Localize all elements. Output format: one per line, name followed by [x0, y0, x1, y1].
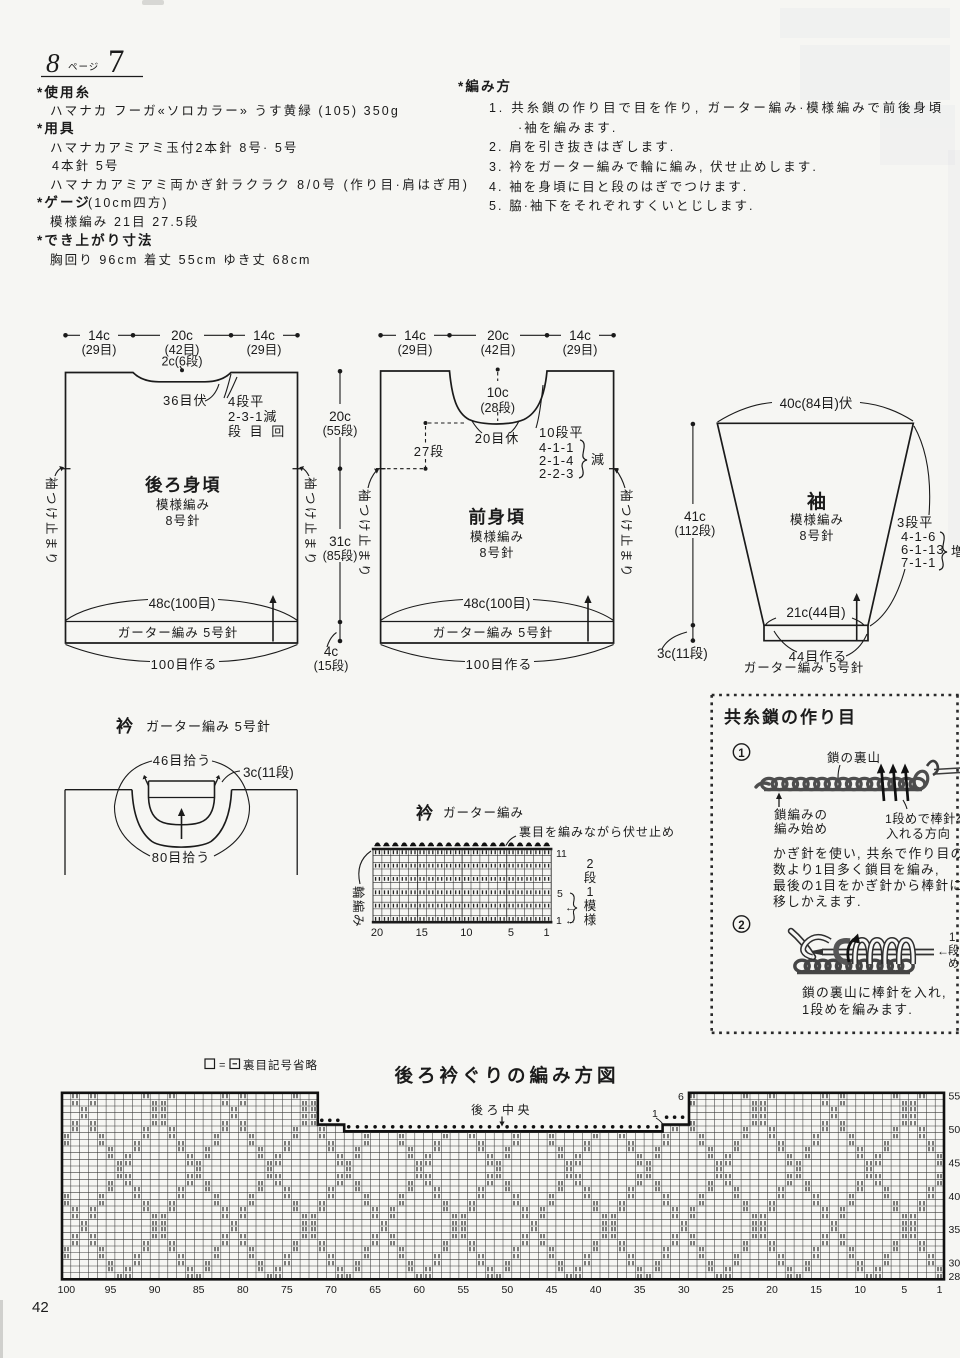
svg-text:(29目): (29目) — [82, 343, 117, 357]
svg-text:1: 1 — [587, 885, 594, 899]
svg-text:*でき上がり寸法: *でき上がり寸法 — [37, 232, 154, 248]
svg-text:=: = — [219, 1060, 225, 1072]
svg-text:14c: 14c — [569, 328, 591, 343]
svg-text:鎖編みの: 鎖編みの — [774, 807, 828, 822]
svg-text:(42目): (42目) — [481, 343, 516, 357]
svg-text:*使用糸: *使用糸 — [37, 84, 91, 100]
svg-text:15: 15 — [810, 1284, 822, 1296]
svg-text:移しかえます.: 移しかえます. — [773, 894, 862, 909]
svg-text:*ゲージ: *ゲージ — [37, 194, 91, 210]
svg-text:ガーター編み 5号針: ガーター編み 5号針 — [118, 625, 238, 640]
svg-text:90: 90 — [149, 1284, 161, 1296]
svg-text:*用具: *用具 — [37, 121, 76, 136]
svg-text:28: 28 — [949, 1271, 960, 1283]
svg-text:(55段): (55段) — [323, 423, 358, 438]
svg-text:模様編み: 模様編み — [156, 497, 210, 512]
svg-text:100: 100 — [58, 1284, 76, 1296]
svg-text:·袖を編みます.: ·袖を編みます. — [518, 120, 617, 135]
svg-text:ハマナカアミアミ玉付2本針 8号· 5号: ハマナカアミアミ玉付2本針 8号· 5号 — [50, 140, 298, 155]
svg-text:模様編み: 模様編み — [470, 529, 524, 544]
svg-text:31c: 31c — [329, 534, 351, 549]
svg-text:7: 7 — [108, 44, 125, 80]
svg-text:1. 共糸鎖の作り目で目を作り, ガーター編み·模様編みで前: 1. 共糸鎖の作り目で目を作り, ガーター編み·模様編みで前後身頃 — [489, 100, 944, 115]
svg-text:*編み方: *編み方 — [458, 78, 512, 94]
svg-text:ガーター編み: ガーター編み — [443, 805, 524, 820]
svg-text:48c(100目): 48c(100目) — [149, 596, 216, 611]
svg-text:40: 40 — [590, 1284, 602, 1296]
svg-text:25: 25 — [722, 1284, 734, 1296]
svg-text:鎖の裏山: 鎖の裏山 — [827, 750, 881, 765]
svg-text:14c: 14c — [253, 328, 275, 343]
svg-text:4. 袖を身頃に目と段のはぎでつけます.: 4. 袖を身頃に目と段のはぎでつけます. — [489, 179, 748, 194]
svg-text:40c(84目)伏: 40c(84目)伏 — [780, 396, 853, 411]
svg-text:20目休: 20目休 — [475, 431, 519, 446]
svg-text:裏目を編みながら伏せ止め: 裏目を編みながら伏せ止め — [519, 824, 675, 839]
svg-text:5: 5 — [901, 1284, 907, 1296]
svg-text:4c: 4c — [324, 644, 339, 659]
svg-text:8号針: 8号針 — [166, 513, 201, 528]
svg-text:(112段): (112段) — [675, 523, 716, 538]
svg-text:40: 40 — [949, 1191, 960, 1203]
svg-text:模: 模 — [584, 899, 597, 913]
svg-text:ハマナカアミアミ両かぎ針ラクラク 8/0号 (作り目·肩は: ハマナカアミアミ両かぎ針ラクラク 8/0号 (作り目·肩はぎ用) — [50, 177, 470, 192]
svg-text:20c: 20c — [487, 328, 509, 343]
svg-text:ガーター編み 5号針: ガーター編み 5号針 — [433, 625, 553, 640]
svg-text:袖つけ止まり: 袖つけ止まり — [619, 489, 634, 579]
svg-text:増: 増 — [951, 544, 960, 559]
svg-text:50: 50 — [949, 1124, 960, 1136]
svg-text:65: 65 — [369, 1284, 381, 1296]
svg-text:60: 60 — [413, 1284, 425, 1296]
svg-text:後ろ身頃: 後ろ身頃 — [145, 475, 221, 495]
svg-text:段 目 回: 段 目 回 — [228, 424, 287, 439]
svg-text:20c: 20c — [329, 409, 351, 424]
svg-text:2-2-3: 2-2-3 — [539, 466, 574, 481]
svg-text:ハマナカ フーガ«ソロカラー» うす黄緑 (105) 350: ハマナカ フーガ«ソロカラー» うす黄緑 (105) 350g — [50, 103, 400, 118]
svg-text:前身頃: 前身頃 — [469, 507, 526, 527]
svg-text:55: 55 — [457, 1284, 469, 1296]
svg-text:裏目記号省略: 裏目記号省略 — [243, 1058, 318, 1072]
svg-text:(29目): (29目) — [247, 343, 282, 357]
svg-text:5: 5 — [508, 927, 514, 939]
svg-text:様: 様 — [584, 912, 597, 927]
svg-text:7-1-1: 7-1-1 — [901, 555, 936, 570]
svg-text:1段めで棒針を: 1段めで棒針を — [885, 811, 960, 826]
svg-text:11: 11 — [556, 848, 567, 860]
svg-text:1: 1 — [556, 915, 562, 927]
svg-text:鎖の裏山に棒針を入れ,: 鎖の裏山に棒針を入れ, — [802, 985, 947, 1000]
svg-text:30: 30 — [678, 1284, 690, 1296]
svg-text:15: 15 — [416, 927, 428, 939]
svg-text:5: 5 — [557, 888, 563, 900]
svg-text:ページ: ページ — [68, 62, 99, 73]
svg-text:45: 45 — [546, 1284, 558, 1296]
svg-text:段: 段 — [584, 870, 597, 885]
svg-text:6: 6 — [678, 1091, 684, 1103]
svg-text:(29目): (29目) — [398, 343, 433, 357]
svg-text:27段: 27段 — [414, 444, 444, 459]
svg-text:2: 2 — [587, 857, 594, 871]
svg-text:模様編み 21目 27.5段: 模様編み 21目 27.5段 — [50, 214, 200, 229]
svg-text:10段平: 10段平 — [539, 425, 583, 440]
svg-text:35: 35 — [634, 1284, 646, 1296]
svg-text:80目拾う: 80目拾う — [152, 850, 210, 865]
svg-text:1段めを編みます.: 1段めを編みます. — [802, 1002, 913, 1017]
svg-text:2c(6段): 2c(6段) — [162, 354, 203, 369]
svg-text:100目作る: 100目作る — [466, 657, 533, 672]
svg-text:10: 10 — [460, 927, 472, 939]
svg-text:1: 1 — [937, 1284, 943, 1296]
svg-text:入れる方向: 入れる方向 — [886, 826, 951, 841]
svg-text:4段平: 4段平 — [228, 394, 264, 409]
svg-text:2: 2 — [738, 920, 744, 932]
svg-text:41c: 41c — [684, 509, 706, 524]
svg-text:1: 1 — [738, 748, 745, 760]
svg-text:衿: 衿 — [416, 803, 433, 823]
svg-text:20: 20 — [371, 927, 383, 939]
svg-text:21c(44目): 21c(44目) — [786, 605, 845, 620]
svg-text:後ろ衿ぐりの編み方図: 後ろ衿ぐりの編み方図 — [394, 1065, 619, 1086]
svg-text:ガーター編み 5号針: ガーター編み 5号針 — [146, 719, 271, 734]
svg-text:輪編み: 輪編み — [351, 886, 366, 928]
svg-text:10c: 10c — [487, 385, 509, 400]
svg-text:10: 10 — [854, 1284, 866, 1296]
svg-text:袖つけ止まり: 袖つけ止まり — [357, 489, 372, 579]
svg-text:8号針: 8号針 — [800, 528, 835, 543]
svg-text:袖つけ止まり: 袖つけ止まり — [303, 477, 318, 567]
svg-text:(10cm四方): (10cm四方) — [88, 195, 169, 210]
svg-text:85: 85 — [193, 1284, 205, 1296]
svg-text:20: 20 — [766, 1284, 778, 1296]
svg-text:4本針 5号: 4本針 5号 — [52, 158, 119, 173]
svg-text:95: 95 — [105, 1284, 117, 1296]
svg-text:袖: 袖 — [807, 490, 827, 513]
svg-text:55: 55 — [949, 1091, 960, 1103]
svg-text:共糸鎖の作り目: 共糸鎖の作り目 — [724, 707, 857, 727]
svg-text:75: 75 — [281, 1284, 293, 1296]
svg-text:3. 衿をガーター編みで輪に編み, 伏せ止めします.: 3. 衿をガーター編みで輪に編み, 伏せ止めします. — [489, 159, 818, 174]
svg-text:(15段): (15段) — [314, 658, 349, 673]
svg-text:3段平: 3段平 — [897, 515, 933, 530]
svg-text:80: 80 — [237, 1284, 249, 1296]
svg-text:30: 30 — [949, 1258, 960, 1270]
svg-text:8号針: 8号針 — [480, 545, 515, 560]
svg-text:(85段): (85段) — [323, 548, 358, 563]
svg-text:8: 8 — [46, 48, 60, 78]
svg-text:36目伏: 36目伏 — [163, 393, 207, 408]
svg-text:め: め — [948, 957, 960, 970]
svg-text:編み始め: 編み始め — [774, 821, 828, 836]
svg-text:衿: 衿 — [116, 716, 133, 736]
svg-text:14c: 14c — [88, 328, 110, 343]
svg-text:14c: 14c — [404, 328, 426, 343]
svg-text:45: 45 — [949, 1158, 960, 1170]
svg-text:模様編み: 模様編み — [790, 512, 844, 527]
svg-text:3c(11段): 3c(11段) — [243, 765, 294, 780]
svg-text:1: 1 — [949, 932, 955, 944]
svg-text:2. 肩を引き抜きはぎします.: 2. 肩を引き抜きはぎします. — [489, 139, 675, 154]
svg-text:後ろ中央: 後ろ中央 — [471, 1102, 533, 1117]
svg-text:48c(100目): 48c(100目) — [464, 596, 531, 611]
svg-text:←: ← — [565, 902, 576, 914]
svg-text:かぎ針を使い, 共糸で作り目の: かぎ針を使い, 共糸で作り目の — [773, 846, 960, 861]
svg-text:胸回り 96cm 着丈 55cm ゆき丈 68cm: 胸回り 96cm 着丈 55cm ゆき丈 68cm — [50, 252, 312, 267]
svg-text:50: 50 — [502, 1284, 514, 1296]
svg-text:2-3-1減: 2-3-1減 — [228, 409, 277, 424]
svg-text:100目作る: 100目作る — [151, 657, 218, 672]
svg-text:ガーター編み 5号針: ガーター編み 5号針 — [744, 660, 864, 675]
svg-text:5. 脇·袖下をそれぞれすくいとじします.: 5. 脇·袖下をそれぞれすくいとじします. — [489, 198, 755, 213]
svg-text:3c(11段): 3c(11段) — [657, 646, 708, 661]
svg-text:(28段): (28段) — [480, 400, 515, 415]
svg-text:35: 35 — [949, 1224, 960, 1236]
svg-text:減: 減 — [591, 452, 604, 467]
svg-text:最後の1目をかぎ針から棒針に: 最後の1目をかぎ針から棒針に — [773, 878, 960, 893]
svg-text:1: 1 — [543, 927, 549, 939]
svg-text:70: 70 — [325, 1284, 337, 1296]
svg-text:袖つけ止まり: 袖つけ止まり — [44, 477, 59, 567]
svg-text:42: 42 — [32, 1299, 49, 1316]
svg-text:46目拾う: 46目拾う — [153, 753, 211, 768]
svg-text:20c: 20c — [171, 328, 193, 343]
svg-text:段: 段 — [948, 943, 960, 957]
svg-text:数より1目多く鎖目を編み,: 数より1目多く鎖目を編み, — [773, 862, 940, 877]
svg-text:(29目): (29目) — [563, 343, 598, 357]
